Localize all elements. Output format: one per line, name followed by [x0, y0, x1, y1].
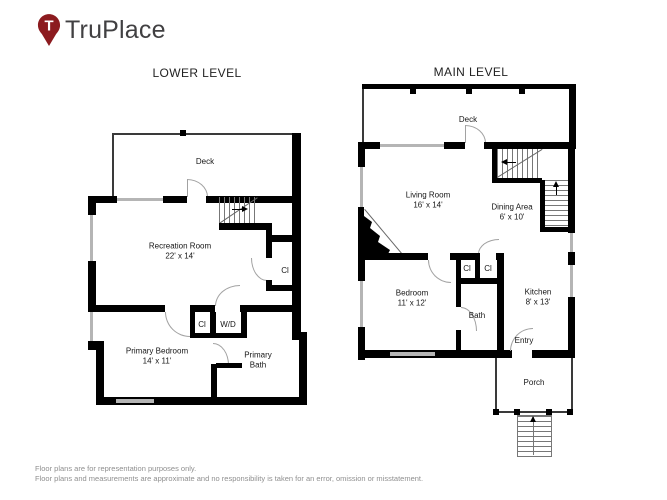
room-label-bath: Bath: [469, 311, 485, 321]
wall-segment: [568, 252, 575, 265]
wall-segment: [266, 242, 272, 258]
porch-wall: [495, 411, 573, 413]
wall-segment: [190, 305, 215, 312]
deck-post: [466, 88, 472, 94]
wall-segment: [299, 340, 307, 405]
room-label-kitchen: Kitchen 8' x 13': [525, 288, 552, 309]
room-dims: 6' x 10': [491, 213, 532, 223]
wall-segment: [456, 253, 461, 278]
stair-direction-stem: [507, 162, 516, 163]
wall-segment: [540, 227, 575, 232]
deck-label: Deck: [459, 115, 477, 125]
closet-label: Cl: [463, 264, 471, 274]
wall-segment: [88, 196, 96, 215]
room-name: Kitchen: [525, 288, 552, 298]
room-label-living-room: Living Room 16' x 14': [406, 191, 450, 212]
window-segment: [360, 167, 363, 207]
room-name: Primary Bedroom: [126, 347, 188, 357]
deck-post: [180, 130, 186, 136]
room-label-dining-area: Dining Area 6' x 10': [491, 203, 532, 224]
door-arc: [478, 239, 499, 254]
room-dims: 14' x 11': [126, 357, 188, 367]
room-label-recreation: Recreation Room 22' x 14': [149, 242, 211, 263]
wall-segment: [240, 305, 301, 312]
wall-segment: [358, 257, 365, 281]
wall-segment: [444, 142, 465, 149]
wall-segment: [568, 297, 575, 358]
lower-level-plan: Deck Cl Cl W/D Recreation Room: [85, 130, 315, 410]
room-label-entry: Entry: [515, 336, 534, 346]
room-label-bedroom: Bedroom 11' x 12': [396, 289, 428, 310]
door-arc: [251, 258, 267, 281]
deck-label: Deck: [196, 157, 214, 167]
room-dims: 11' x 12': [396, 299, 428, 309]
porch-post: [567, 409, 573, 415]
wall-segment: [475, 253, 480, 278]
door-arc: [187, 179, 208, 197]
wall-segment: [456, 350, 504, 358]
deck-wall: [112, 133, 114, 197]
door-arc: [465, 125, 486, 143]
wall-segment: [358, 142, 365, 167]
door-arc: [215, 285, 240, 306]
wall-segment: [456, 278, 504, 284]
room-name: Bedroom: [396, 289, 428, 299]
wall-segment: [358, 253, 428, 260]
wall-segment: [484, 142, 575, 149]
wall-segment: [292, 332, 307, 340]
wall-segment: [492, 178, 542, 183]
deck-post: [410, 88, 416, 94]
room-dims: 16' x 14': [406, 201, 450, 211]
door-arc: [428, 260, 451, 283]
porch-wall: [495, 358, 497, 413]
closet-label: Cl: [281, 266, 289, 276]
footer-line-1: Floor plans are for representation purpo…: [35, 464, 423, 474]
wall-segment: [88, 341, 104, 350]
deck-wall: [112, 133, 298, 135]
closet-label: Cl: [198, 320, 206, 330]
footer-line-2: Floor plans and measurements are approxi…: [35, 474, 423, 484]
wall-segment: [497, 253, 504, 358]
room-name: Recreation Room: [149, 242, 211, 252]
main-level-plan: Deck Cl Cl: [358, 82, 583, 462]
wall-segment: [504, 350, 512, 358]
wall-segment: [88, 305, 165, 312]
pin-letter: T: [44, 19, 53, 35]
room-name: Living Room: [406, 191, 450, 201]
door-arc: [165, 312, 190, 337]
room-dims: 22' x 14': [149, 252, 211, 262]
window-segment: [90, 310, 93, 341]
room-label-porch: Porch: [524, 378, 545, 388]
window-segment: [360, 281, 363, 327]
window-segment: [116, 399, 154, 403]
wall-segment: [456, 284, 461, 307]
deck-post: [519, 88, 525, 94]
lower-level-title: LOWER LEVEL: [152, 66, 241, 80]
footer-disclaimer: Floor plans are for representation purpo…: [35, 464, 423, 483]
stair-direction-arrow: [242, 206, 248, 212]
room-label-primary-bath: Primary Bath: [244, 351, 272, 372]
room-name: Dining Area: [491, 203, 532, 213]
wall-segment: [450, 253, 478, 260]
truplace-logo: T TruPlace: [36, 13, 166, 47]
window-segment: [117, 198, 163, 201]
window-segment: [90, 215, 93, 261]
fireplace-icon: [358, 207, 405, 259]
porch-post: [493, 409, 499, 415]
stair-direction-stem: [232, 209, 242, 210]
porch-wall: [571, 358, 573, 413]
wall-segment: [568, 142, 575, 233]
wall-segment: [163, 196, 187, 203]
room-label-primary-bedroom: Primary Bedroom 14' x 11': [126, 347, 188, 368]
washer-dryer-label: W/D: [220, 320, 236, 330]
map-pin-icon: T: [36, 13, 62, 47]
window-segment: [570, 233, 573, 252]
wall-segment: [88, 261, 96, 310]
stair-direction-stem: [556, 187, 557, 195]
brand-name: TruPlace: [65, 13, 166, 47]
wall-segment: [569, 84, 576, 149]
window-segment: [570, 265, 573, 297]
door-arc: [213, 343, 229, 365]
closet-label: Cl: [484, 264, 492, 274]
wall-segment: [216, 363, 242, 368]
room-name: Primary: [244, 351, 272, 361]
window-segment: [380, 144, 444, 147]
room-dims: 8' x 13': [525, 298, 552, 308]
wall-segment: [266, 285, 301, 291]
wall-segment: [292, 133, 301, 332]
wall-segment: [190, 333, 247, 338]
main-level-title: MAIN LEVEL: [434, 65, 509, 79]
deck-wall: [362, 89, 364, 144]
room-name: Bath: [244, 361, 272, 371]
wall-segment: [219, 223, 272, 230]
window-segment: [390, 352, 435, 356]
stair-direction-arrow: [530, 416, 536, 422]
wall-segment: [266, 235, 301, 242]
